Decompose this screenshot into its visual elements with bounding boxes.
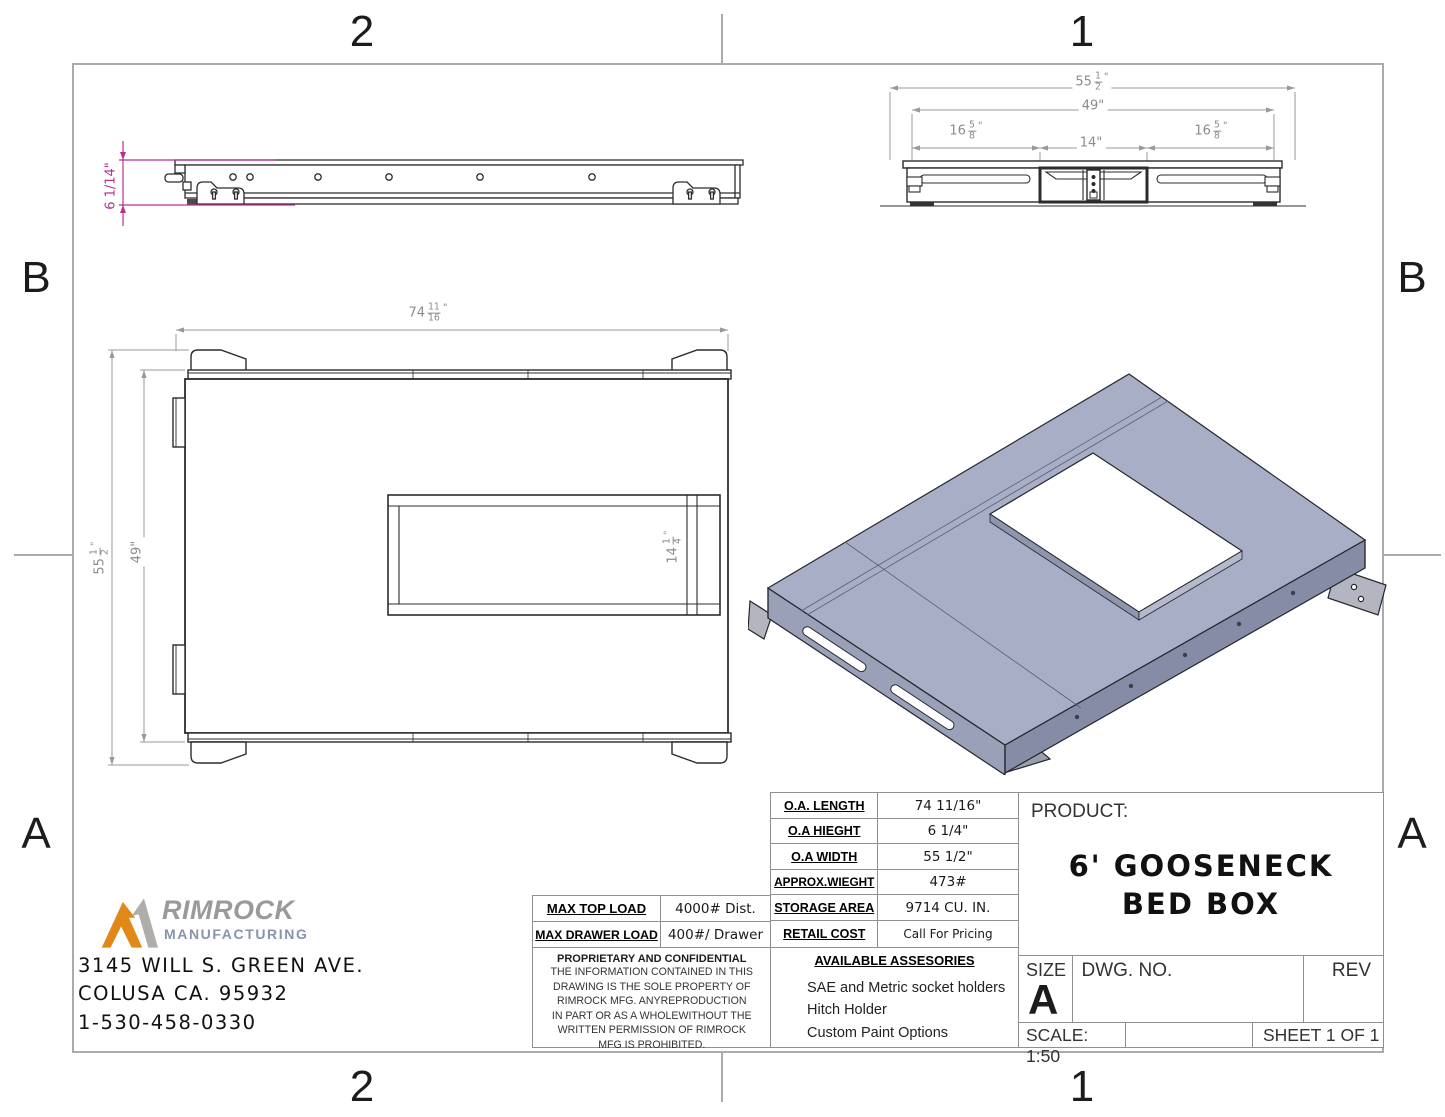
spec-value-cell: 9714 CU. IN. (877, 894, 1019, 921)
dim-den: 4 (674, 538, 683, 544)
spec-value: 9714 CU. IN. (906, 900, 991, 916)
accessory-item: SAE and Metric socket holders (807, 977, 1018, 999)
dim-whole: 74 (408, 306, 425, 321)
proprietary-title: PROPRIETARY AND CONFIDENTIAL (533, 953, 771, 965)
spec-label: STORAGE AREA (774, 901, 874, 915)
spec-label: RETAIL COST (783, 927, 865, 941)
address-line-1: 3145 WILL S. GREEN AVE. (78, 952, 364, 980)
accessories-box: AVAILABLE ASSESORIES SAE and Metric sock… (770, 947, 1019, 1048)
dim-whole: 16 (949, 124, 966, 139)
max-drawer-load-label: MAX DRAWER LOAD (535, 928, 658, 942)
spec-value: 6 1/4" (928, 823, 969, 839)
dim-unit: " (1223, 121, 1228, 132)
zone-label-top-2: 2 (350, 7, 374, 57)
dim-plan-width: 5512" (90, 538, 111, 577)
rev-cell: REV (1303, 955, 1384, 1024)
dim-front-inner: 49" (1079, 99, 1108, 114)
spec-value: 74 11/16" (915, 798, 982, 814)
proprietary-line: MFG IS PROHIBITED. (533, 1038, 771, 1053)
max-drawer-load-value-cell: 400#/ Drawer (660, 921, 772, 949)
accessory-item: Custom Paint Options (807, 1022, 1018, 1044)
spec-value: 55 1/2" (923, 849, 972, 865)
company-address: 3145 WILL S. GREEN AVE. COLUSA CA. 95932… (78, 952, 364, 1037)
dim-plan-opening: 1414" (663, 527, 684, 566)
rev-label: REV (1332, 960, 1371, 982)
company-phone: 1-530-458-0330 (78, 1009, 364, 1037)
zone-label-bottom-2: 2 (350, 1062, 374, 1112)
drawing-sheet: 2 1 2 1 B B A A (0, 0, 1445, 1117)
max-top-load-value: 4000# Dist. (675, 901, 756, 917)
product-name-line-1: 6' GOOSENECK (1019, 849, 1383, 883)
dim-front-center-segment: 14" (1077, 136, 1106, 151)
spec-label-cell: STORAGE AREA (770, 894, 879, 921)
dim-unit: " (90, 541, 101, 546)
dim-whole: 55 (93, 558, 108, 575)
scale-cell: SCALE: 1:50 (1018, 1022, 1126, 1048)
size-value: A (1028, 976, 1058, 1024)
dim-den: 2 (101, 549, 110, 555)
zone-tick-top (721, 14, 723, 63)
sheet-value: SHEET 1 OF 1 (1263, 1025, 1379, 1046)
product-box: PRODUCT: 6' GOOSENECK BED BOX (1018, 792, 1384, 956)
dwg-no-label: DWG. NO. (1082, 960, 1173, 982)
dim-den: 8 (969, 132, 975, 141)
accessory-item: Hitch Holder (807, 999, 1018, 1021)
logo-name: RIMROCK (162, 895, 295, 926)
dim-plan-length: 741116" (408, 303, 447, 324)
dim-whole: 14 (666, 547, 681, 564)
accessories-title: AVAILABLE ASSESORIES (771, 953, 1018, 968)
dim-whole: 55 (1075, 75, 1092, 90)
spec-label-cell: O.A. LENGTH (770, 792, 879, 819)
spec-value: 473# (929, 874, 966, 890)
max-drawer-load-value: 400#/ Drawer (668, 927, 763, 943)
logo-subtitle: MANUFACTURING (164, 926, 308, 942)
isometric-3d-view (748, 363, 1396, 775)
zone-label-bottom-1: 1 (1070, 1062, 1094, 1112)
dim-side-height: 6 1/14" (104, 162, 119, 210)
address-line-2: COLUSA CA. 95932 (78, 980, 364, 1008)
rimrock-logo-icon (100, 893, 158, 953)
proprietary-notice: PROPRIETARY AND CONFIDENTIAL THE INFORMA… (532, 947, 772, 1048)
proprietary-line: DRAWING IS THE SOLE PROPERTY OF (533, 980, 771, 995)
dim-plan-inner: 49" (130, 538, 145, 567)
dim-whole: 16 (1194, 124, 1211, 139)
spec-label-cell: O.A HIEGHT (770, 818, 879, 845)
dim-den: 16 (428, 314, 440, 323)
proprietary-line: RIMROCK MFG. ANYREPRODUCTION (533, 994, 771, 1009)
zone-tick-left (14, 554, 72, 556)
dim-unit: " (663, 530, 674, 535)
proprietary-line: IN PART OR AS A WHOLEWITHOUT THE (533, 1009, 771, 1024)
zone-label-right-b: B (1397, 253, 1426, 303)
spec-label: O.A WIDTH (791, 850, 857, 864)
zone-label-left-a: A (21, 809, 50, 859)
spec-value-cell: 55 1/2" (877, 843, 1019, 870)
weight-cell-empty (1125, 1022, 1253, 1048)
zone-label-right-a: A (1397, 809, 1426, 859)
spec-value-cell: 6 1/4" (877, 818, 1019, 845)
proprietary-line: WRITTEN PERMISSION OF RIMROCK (533, 1023, 771, 1038)
company-logo: RIMROCK MANUFACTURING (100, 893, 360, 955)
spec-label: O.A. LENGTH (784, 799, 865, 813)
spec-label-cell: APPROX.WIEGHT (770, 869, 879, 896)
spec-label-cell: O.A WIDTH (770, 843, 879, 870)
dim-unit: " (443, 303, 448, 314)
dim-unit: " (1104, 72, 1109, 83)
plan-view (83, 293, 745, 775)
side-elevation-view (95, 138, 750, 233)
max-drawer-load-label-cell: MAX DRAWER LOAD (532, 921, 661, 949)
product-name-line-2: BED BOX (1019, 887, 1383, 921)
zone-label-left-b: B (21, 253, 50, 303)
proprietary-line: THE INFORMATION CONTAINED IN THIS (533, 965, 771, 980)
dim-front-left-segment: 1658" (949, 121, 982, 142)
dim-den: 2 (1095, 83, 1101, 92)
size-cell: SIZE A (1018, 955, 1073, 1024)
spec-value: Call For Pricing (903, 927, 992, 941)
scale-value: SCALE: 1:50 (1026, 1025, 1125, 1067)
sheet-cell: SHEET 1 OF 1 (1252, 1022, 1384, 1048)
max-top-load-label: MAX TOP LOAD (547, 901, 646, 916)
spec-value-cell: Call For Pricing (877, 920, 1019, 949)
spec-label: O.A HIEGHT (788, 824, 860, 838)
spec-value-cell: 473# (877, 869, 1019, 896)
zone-tick-bottom (721, 1053, 723, 1102)
dwg-no-cell: DWG. NO. (1072, 955, 1305, 1024)
spec-label: APPROX.WIEGHT (774, 875, 874, 889)
max-top-load-value-cell: 4000# Dist. (660, 895, 772, 922)
spec-label-cell: RETAIL COST (770, 920, 879, 949)
dim-front-overall: 5512" (1072, 72, 1111, 93)
max-top-load-label-cell: MAX TOP LOAD (532, 895, 661, 922)
dim-front-right-segment: 1658" (1194, 121, 1227, 142)
spec-value-cell: 74 11/16" (877, 792, 1019, 819)
zone-label-top-1: 1 (1070, 7, 1094, 57)
dim-den: 8 (1214, 132, 1220, 141)
product-label: PRODUCT: (1031, 801, 1128, 823)
dim-unit: " (978, 121, 983, 132)
